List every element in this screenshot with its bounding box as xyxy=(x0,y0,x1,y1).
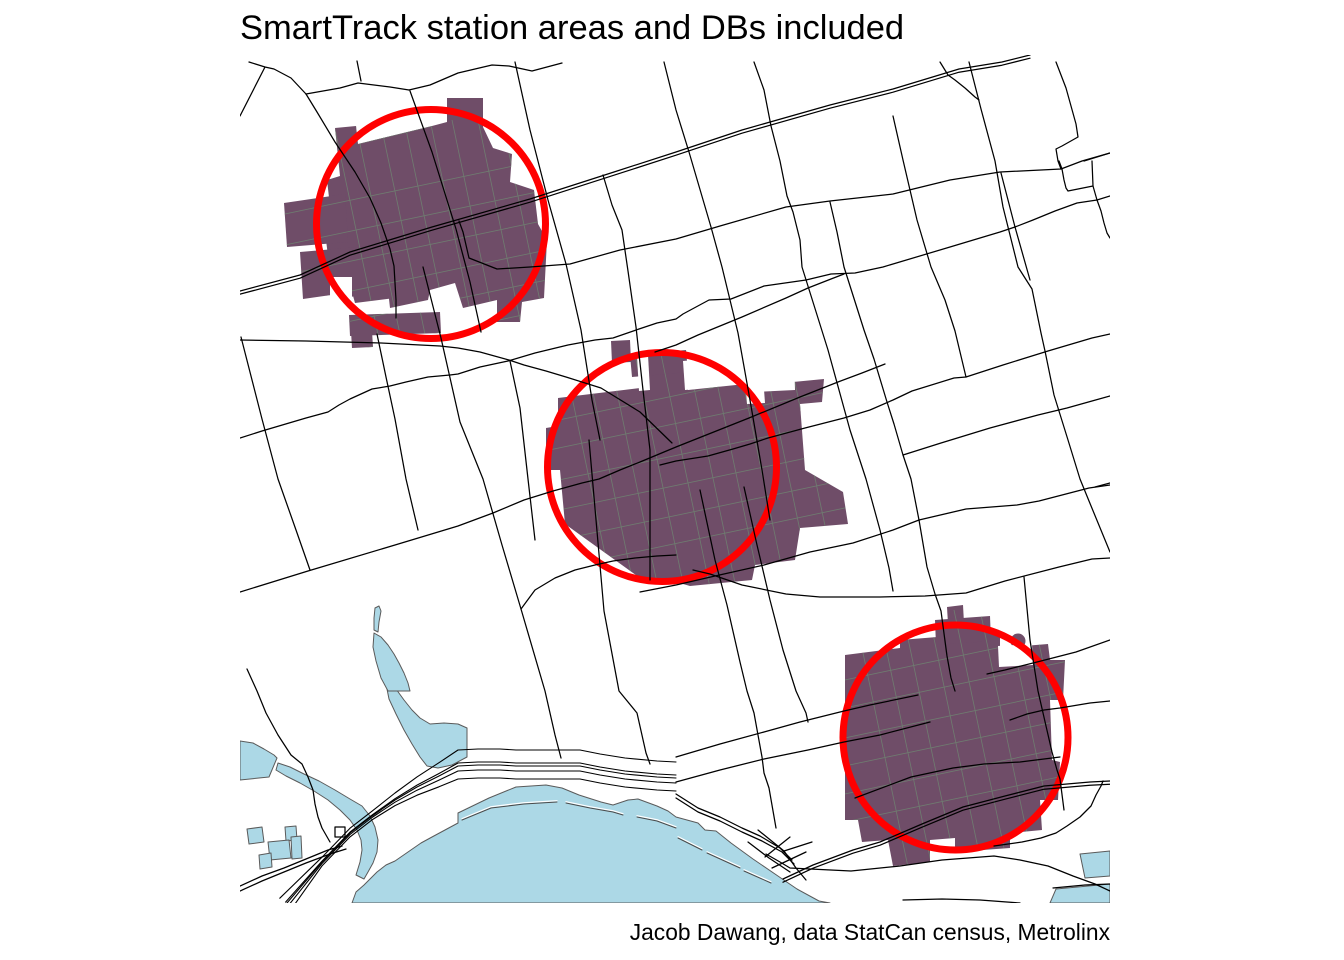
svg-text:Jacob Dawang, data StatCan cen: Jacob Dawang, data StatCan census, Metro… xyxy=(630,919,1111,945)
svg-text:SmartTrack station areas and D: SmartTrack station areas and DBs include… xyxy=(240,9,904,47)
